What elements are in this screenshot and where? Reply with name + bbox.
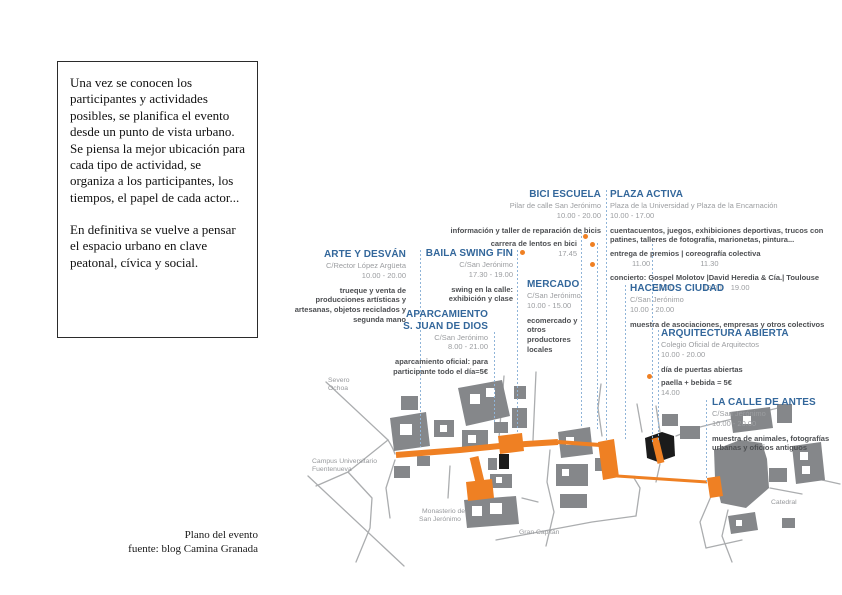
event-title-line2: S. JUAN DE DIOS [392, 321, 488, 333]
event-aparcamiento: APARCAMIENTO S. JUAN DE DIOS C/San Jerón… [392, 309, 488, 377]
event-description: aparcamiento oficial: para participante … [392, 357, 488, 377]
event-marker-dot [590, 242, 595, 247]
guide-line [625, 285, 626, 440]
guide-line [517, 250, 518, 432]
intro-box: Una vez se conocen los participantes y a… [57, 61, 258, 338]
svg-text:San Jerónimo: San Jerónimo [419, 516, 461, 523]
event-location: C/San Jerónimo [712, 409, 842, 419]
event-location: Pilar de calle San Jerónimo [431, 201, 601, 211]
event-title: BICI ESCUELA [431, 189, 601, 201]
intro-paragraph-3: En definitiva se vuelve a pensar el espa… [70, 222, 247, 271]
guide-line [494, 332, 495, 424]
event-hours: 10.00 - 20.00 [712, 419, 842, 429]
event-schedule-item: entrega de premios | coreografía colecti… [610, 249, 842, 259]
event-location: C/San Jerónimo [392, 333, 488, 343]
event-title: PLAZA ACTIVA [610, 189, 842, 201]
intro-paragraph-2: Se piensa la mejor ubicación para cada t… [70, 141, 247, 207]
intro-paragraph-1: Una vez se conocen los participantes y a… [70, 75, 247, 141]
event-hours: 10.00 - 20.00 [630, 305, 830, 315]
map-label-gran-capitan: Gran Capitán [519, 529, 560, 536]
event-location: C/San Jerónimo [527, 291, 585, 301]
event-schedule-time: 17.45 [431, 249, 601, 259]
event-description: swing en la calle: exhibición y clase [413, 285, 513, 305]
event-hours: 10.00 - 20.00 [294, 271, 406, 281]
event-la-calle-de-antes: LA CALLE DE ANTES C/San Jerónimo 10.00 -… [712, 397, 842, 453]
event-title: LA CALLE DE ANTES [712, 397, 842, 409]
event-hacemos-ciudad: HACEMOS CIUDAD C/San Jerónimo 10.00 - 20… [630, 283, 830, 329]
event-hours: 10.00 - 15.00 [527, 301, 585, 311]
event-hours: 8.00 - 21.00 [392, 342, 488, 352]
event-marker-dot [590, 262, 595, 267]
event-title: APARCAMIENTO [392, 309, 488, 321]
event-plaza-activa: PLAZA ACTIVA Plaza de la Universidad y P… [610, 189, 842, 293]
event-description: muestra de animales, fotografías urbanas… [712, 434, 842, 454]
map-label-catedral: Catedral [771, 499, 797, 506]
event-schedule-times: 11.00 11.30 [610, 259, 842, 269]
event-mercado: MERCADO C/San Jerónimo 10.00 - 15.00 eco… [527, 279, 585, 355]
guide-line [597, 243, 598, 430]
event-description: trueque y venta de producciones artístic… [294, 286, 406, 326]
event-marker-dot [647, 374, 652, 379]
guide-line [606, 190, 607, 441]
map-label-monasterio: Monasterio de [422, 508, 465, 515]
event-arquitectura-abierta: ARQUITECTURA ABIERTA Colegio Oficial de … [661, 328, 811, 398]
event-schedule-item: concierto: Gospel Molotov |David Heredia… [610, 273, 842, 283]
page: { "intro": { "p1": "Una vez se conocen l… [0, 0, 842, 595]
event-title: MERCADO [527, 279, 585, 291]
event-title: HACEMOS CIUDAD [630, 283, 830, 295]
event-description: ecomercado y otros productores locales [527, 316, 585, 356]
svg-text:Fuentenueva: Fuentenueva [312, 466, 352, 473]
event-description: información y taller de reparación de bi… [431, 226, 601, 236]
caption-title: Plano del evento [100, 528, 258, 542]
event-location: Plaza de la Universidad y Plaza de la En… [610, 201, 842, 211]
event-schedule-item: paella + bebida = 5€ [661, 378, 811, 388]
event-location: C/Rector López Argüeta [294, 261, 406, 271]
event-hours: 17.30 - 19.00 [413, 270, 513, 280]
map-label-campus: Campus Universitario [312, 458, 377, 465]
event-marker-dot [583, 234, 588, 239]
event-bici-escuela: BICI ESCUELA Pilar de calle San Jerónimo… [431, 189, 601, 259]
map-label-severo-ochoa: Severo [328, 377, 350, 384]
guide-line [658, 330, 659, 442]
event-hours: 10.00 - 17.00 [610, 211, 842, 221]
event-marker-dot [520, 250, 525, 255]
parking-area [466, 479, 494, 501]
event-title: ARTE Y DESVÁN [294, 249, 406, 261]
svg-text:Ochoa: Ochoa [328, 385, 348, 392]
event-location: C/San Jerónimo [413, 260, 513, 270]
event-title: ARQUITECTURA ABIERTA [661, 328, 811, 340]
guide-line [706, 400, 707, 484]
event-location: C/San Jerónimo [630, 295, 830, 305]
event-hours: 10.00 - 20.00 [661, 350, 811, 360]
caption: Plano del evento fuente: blog Camina Gra… [100, 528, 258, 557]
event-location: Colegio Oficial de Arquitectos [661, 340, 811, 350]
event-hours: 10.00 - 20.00 [431, 211, 601, 221]
event-schedule-item: carrera de lentos en bici [431, 239, 601, 249]
event-description: cuentacuentos, juegos, exhibiciones depo… [610, 226, 838, 246]
event-description: día de puertas abiertas [661, 365, 811, 375]
event-arte-y-desvan: ARTE Y DESVÁN C/Rector López Argüeta 10.… [294, 249, 406, 325]
caption-source: fuente: blog Camina Granada [100, 542, 258, 556]
church-s-juan-de-dios [499, 454, 509, 469]
